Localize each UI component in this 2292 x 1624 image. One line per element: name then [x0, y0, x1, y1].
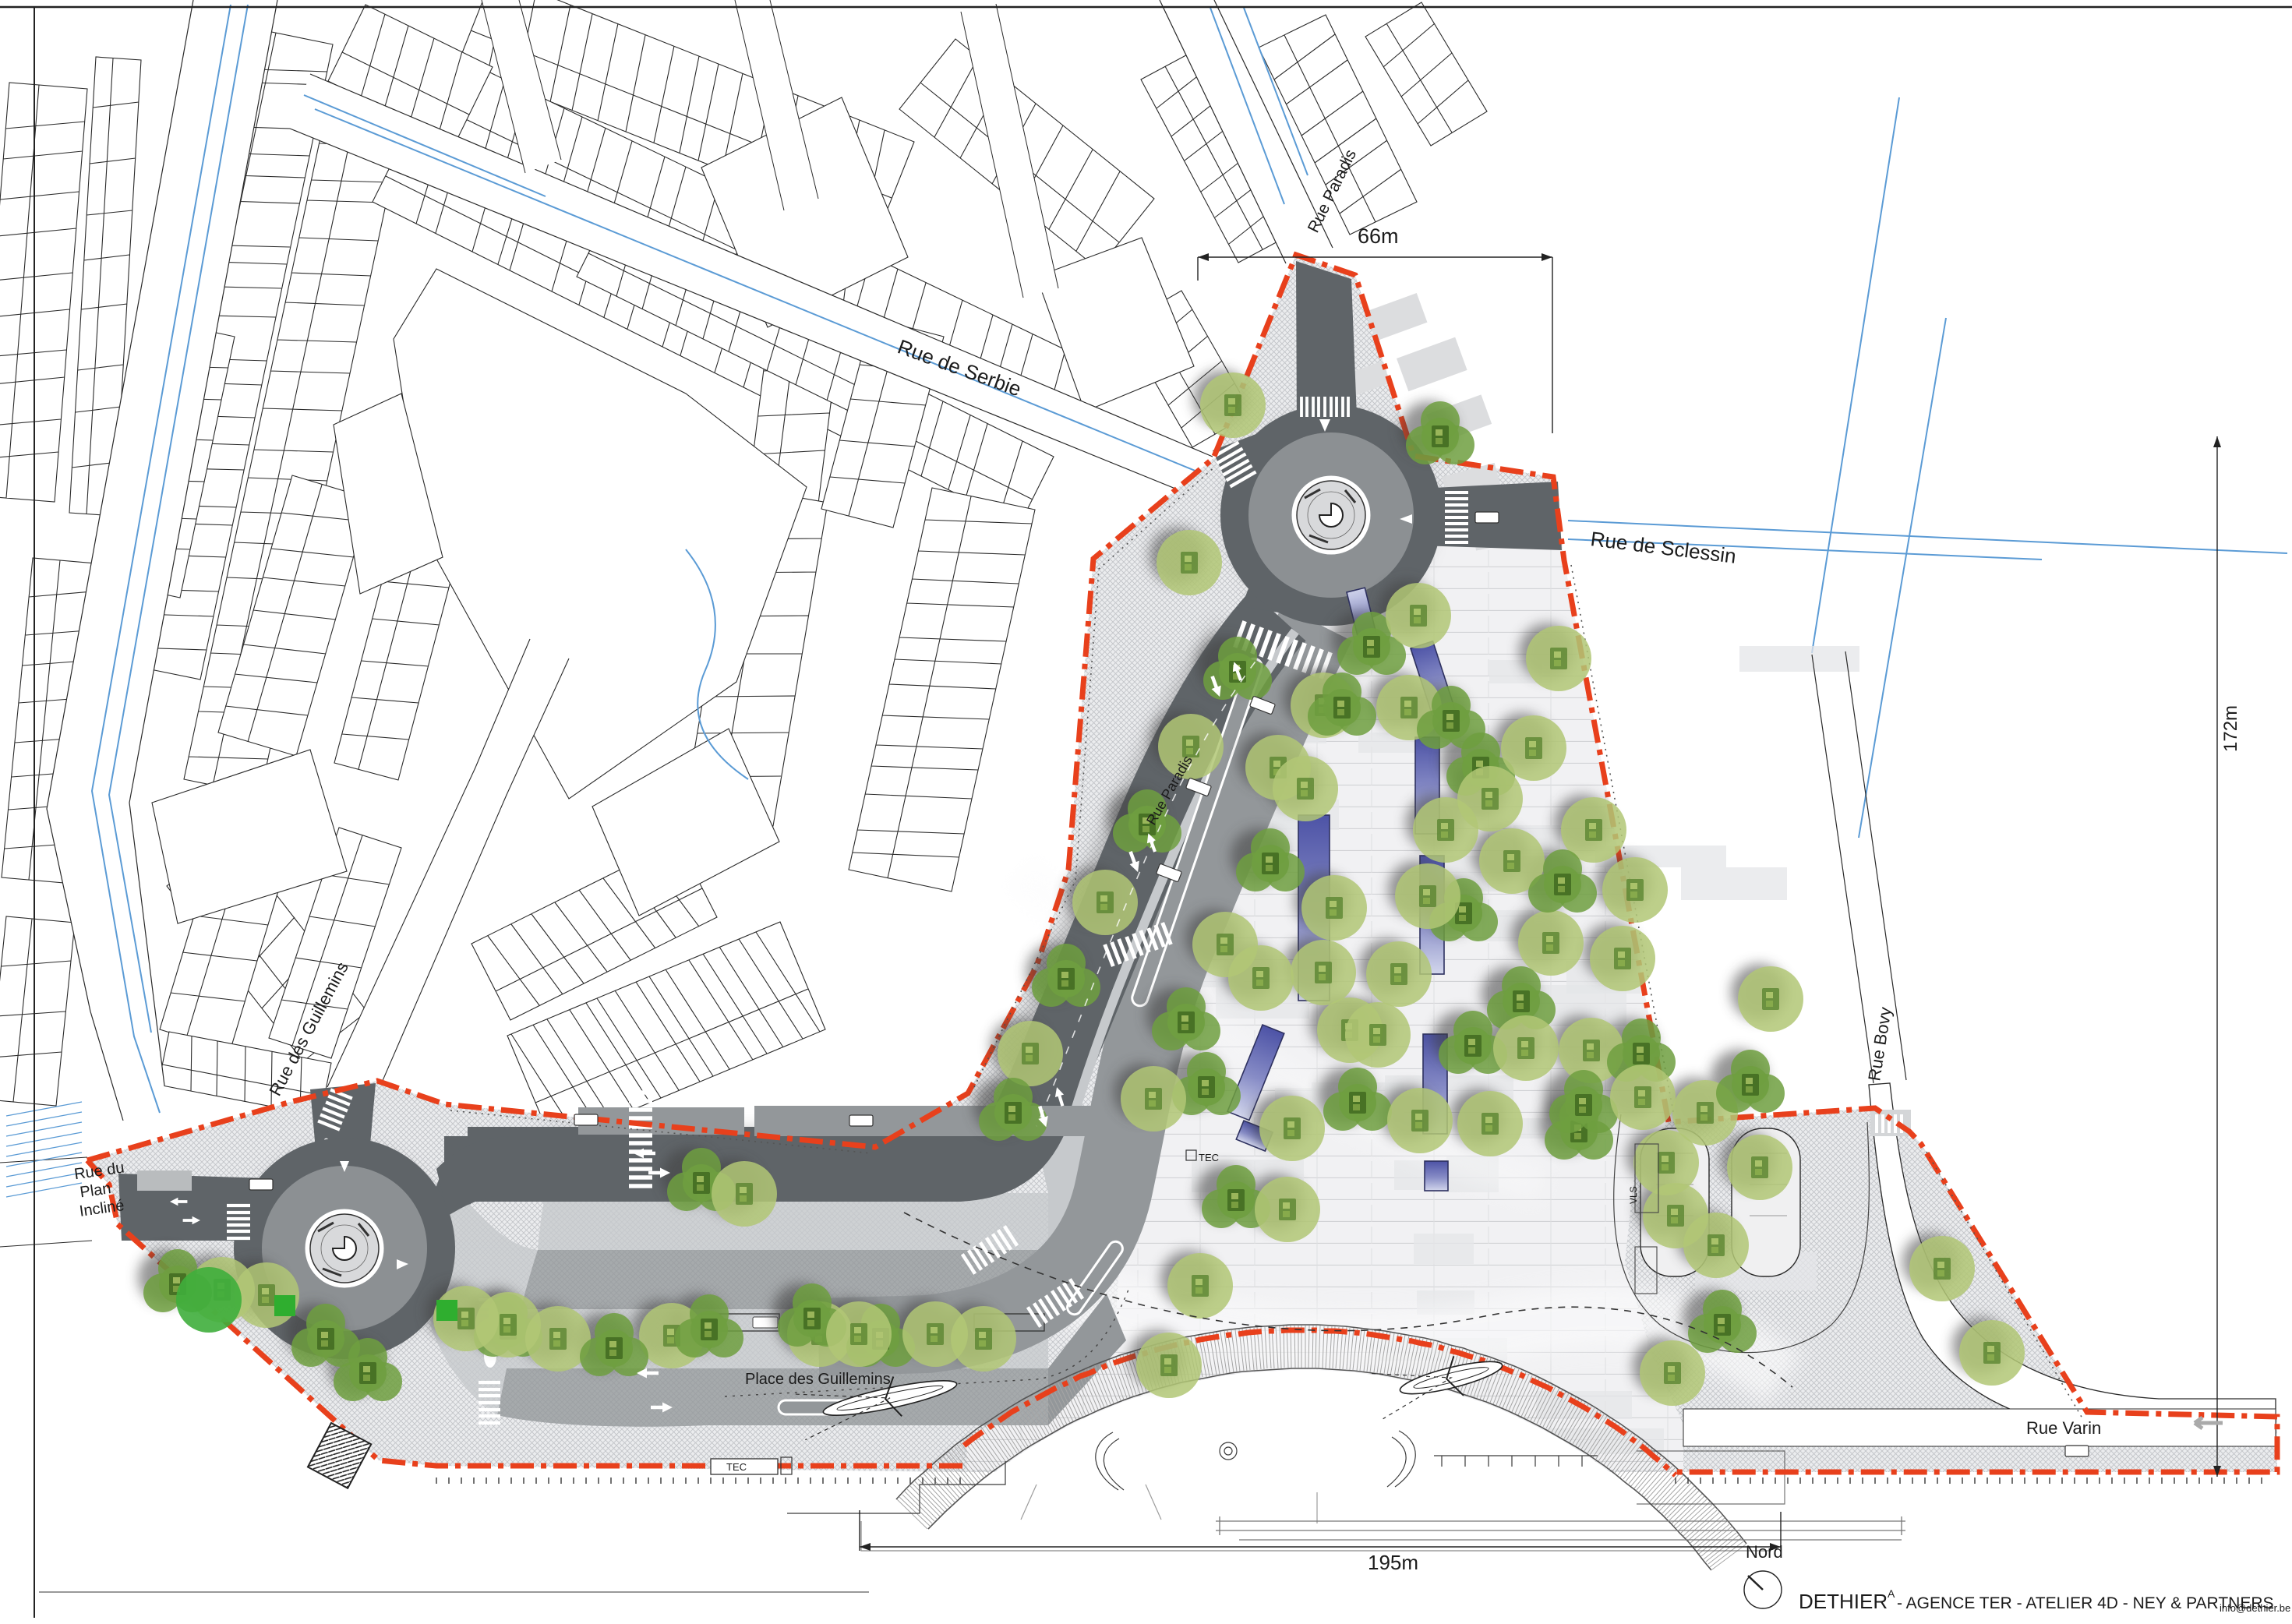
svg-text:DETHIER: DETHIER — [1799, 1590, 1888, 1613]
svg-text:A: A — [1888, 1587, 1895, 1600]
svg-text:Nord: Nord — [1746, 1542, 1783, 1562]
svg-text:info@dethier.be: info@dethier.be — [2220, 1602, 2290, 1614]
svg-text:- AGENCE TER - ATELIER 4D - N: - AGENCE TER - ATELIER 4D - NEY & PARTNE… — [1897, 1594, 2274, 1612]
svg-text:TEC: TEC — [726, 1461, 747, 1473]
svg-text:VLS: VLS — [1628, 1186, 1639, 1204]
svg-text:TEC: TEC — [1199, 1152, 1219, 1163]
svg-text:66m: 66m — [1358, 224, 1399, 248]
svg-text:Place des Guillemins: Place des Guillemins — [745, 1371, 891, 1388]
svg-text:195m: 195m — [1368, 1551, 1418, 1574]
svg-text:172m: 172m — [2220, 705, 2241, 752]
svg-text:Rue Varin: Rue Varin — [2026, 1418, 2101, 1438]
